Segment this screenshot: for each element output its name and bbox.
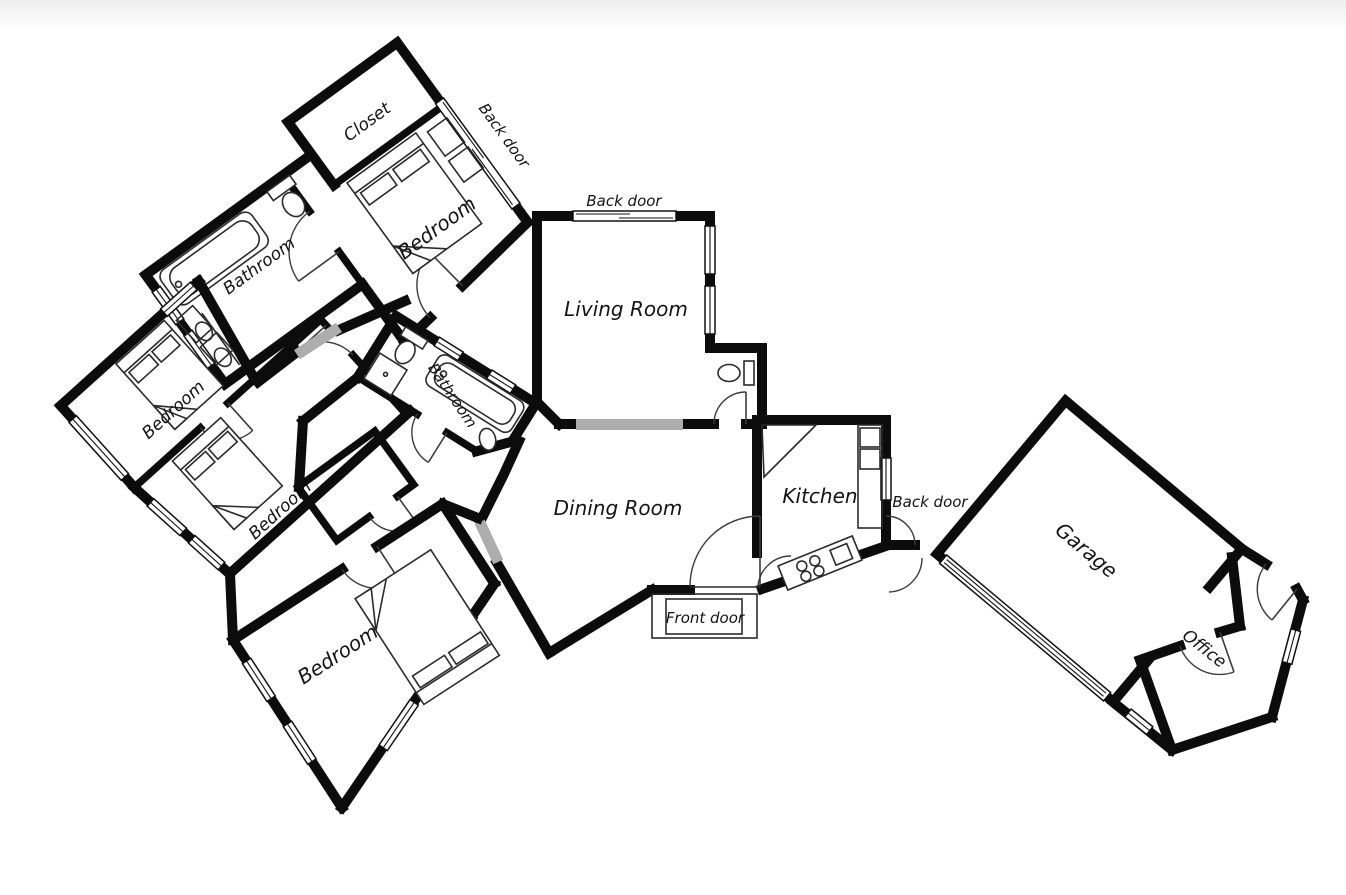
garage-door (940, 555, 1111, 701)
window (69, 416, 129, 481)
door-leaf (228, 403, 253, 430)
room-label-living-room: Living Room (564, 297, 688, 321)
wing-bottom-bedroom: Bedroom (229, 504, 552, 811)
window (283, 721, 316, 764)
bed-icon (355, 550, 499, 705)
toilet-icon (718, 361, 754, 385)
window (379, 700, 418, 751)
floor-plan: Closet Bedroom Bathroom Back door (0, 0, 1346, 895)
window (188, 536, 224, 570)
counter-icon (858, 425, 882, 528)
door-label-front-door: Front door (666, 609, 745, 627)
window (147, 499, 186, 536)
window (1282, 629, 1300, 664)
door-label-back-door-kitchen: Back door (892, 493, 968, 511)
fridge-icon (860, 449, 880, 469)
wing-garage: Garage (933, 401, 1241, 706)
door-leaf (428, 433, 447, 463)
wing-office: Office (1113, 549, 1303, 750)
floor-plan-page: Closet Bedroom Bathroom Back door (0, 0, 1346, 895)
door-label-back-door-living: Back door (586, 192, 662, 210)
core-living-dining-kitchen (475, 211, 922, 653)
room-label-garage: Garage (1051, 517, 1123, 582)
window (705, 286, 715, 334)
sink-icon (860, 428, 880, 447)
passage-opening (576, 419, 683, 430)
window (705, 226, 715, 274)
door-arc (889, 558, 922, 592)
counter-icon (762, 425, 816, 477)
room-label-kitchen: Kitchen (782, 484, 857, 508)
door-arc (1257, 564, 1272, 620)
room-label-dining-room: Dining Room (554, 496, 683, 520)
back-door-slider (573, 211, 676, 221)
room-label-bedroom-lower: Bedroom (293, 619, 382, 689)
wall-closet-box (298, 431, 414, 540)
door-arc (690, 516, 760, 586)
stove-icon (778, 536, 862, 590)
door-leaf (299, 252, 339, 281)
top-shade (0, 0, 1346, 30)
door-leaf (1272, 589, 1297, 620)
window (242, 658, 275, 701)
window (1125, 709, 1153, 734)
room-label-closet: Closet (340, 98, 396, 146)
